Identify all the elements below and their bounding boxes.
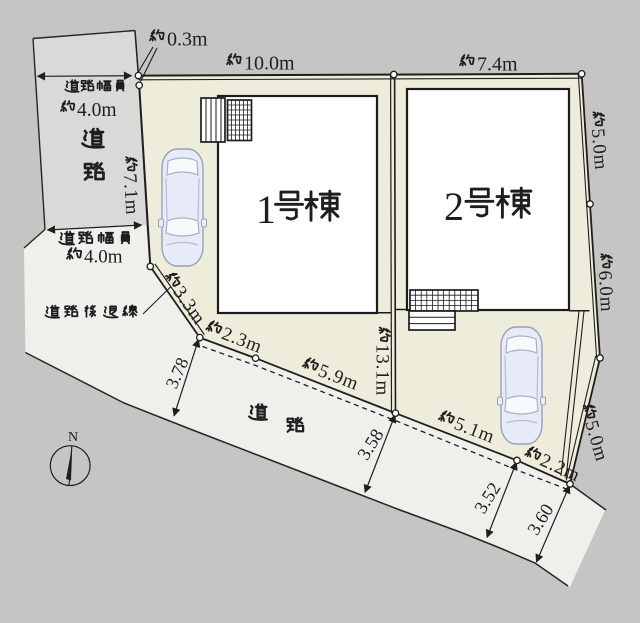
svg-text:13.1m: 13.1m: [372, 344, 393, 396]
svg-text:6.0m: 6.0m: [594, 270, 617, 313]
svg-text:N: N: [68, 430, 78, 445]
svg-text:7.1m: 7.1m: [119, 173, 143, 216]
svg-text:7.4m: 7.4m: [477, 54, 518, 76]
svg-text:1: 1: [256, 187, 276, 232]
svg-text:4.0m: 4.0m: [84, 247, 123, 268]
svg-text:4.0m: 4.0m: [77, 100, 117, 121]
svg-text:5.0m: 5.0m: [587, 128, 612, 171]
svg-text:0.3m: 0.3m: [167, 29, 208, 51]
svg-text:10.0m: 10.0m: [244, 53, 295, 75]
svg-text:2: 2: [444, 184, 464, 229]
